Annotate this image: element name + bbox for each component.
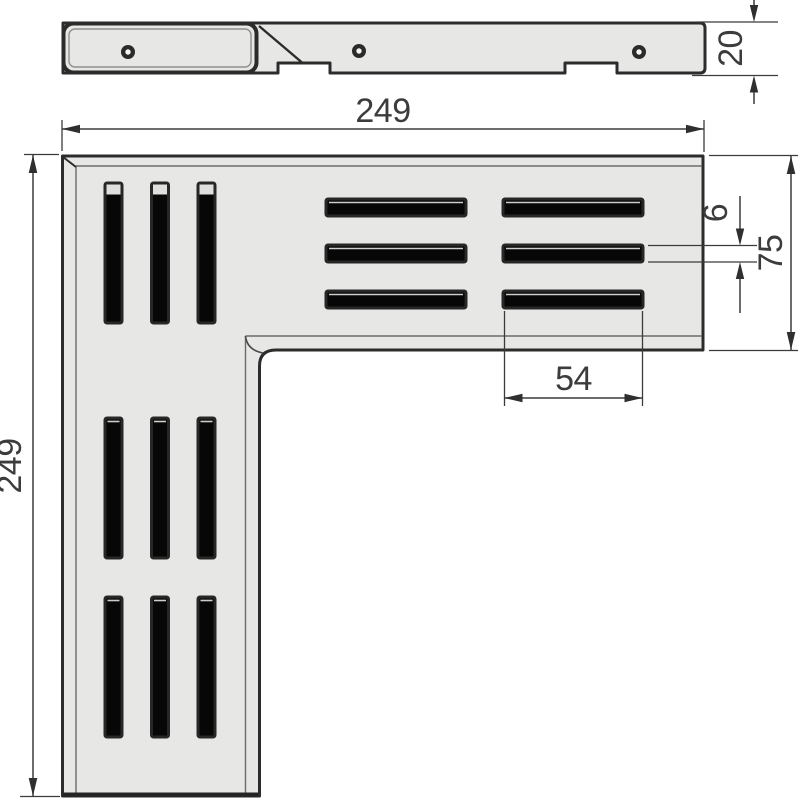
dim-label-slot-length: 54 [555,360,592,398]
profile-end-sleeve [64,24,257,73]
arrowhead [505,394,523,403]
arrowhead [736,229,744,246]
arrowhead [787,156,796,174]
vent-slot-horizontal [503,245,643,262]
arrowhead [686,125,704,134]
vent-slot-horizontal [326,199,466,216]
arrowhead [29,155,38,173]
vent-slot-vertical [152,418,169,558]
arrowhead [736,262,744,279]
vent-slot-horizontal [326,291,466,308]
dim-label-top-width: 249 [355,92,410,130]
dimension-left-height: 249 [0,155,60,797]
arrowhead [625,394,643,403]
vent-slot-vertical [105,183,122,323]
dim-label-left-height: 249 [0,438,29,493]
vent-slot-vertical [152,183,169,323]
screw-hole [352,44,366,58]
dimension-top-width: 249 [62,92,704,152]
main-view: 249 249 75 6 [0,92,798,797]
dim-label-profile-thickness: 20 [712,30,750,67]
arrowhead [29,778,38,796]
vent-slot-horizontal [503,199,643,216]
dimension-arm-width: 75 [709,156,798,351]
profile-view: 20 [63,0,778,104]
arrowhead [750,5,758,22]
arrowhead [787,332,796,350]
dim-label-slot-width: 6 [697,204,735,222]
drain-grate-drawing: 20 249 249 [0,0,799,800]
vertical-vent-slots [105,183,215,737]
vent-slot-vertical [105,597,122,737]
vent-slot-vertical [105,418,122,558]
vent-slot-vertical [198,183,215,323]
vent-slot-vertical [152,597,169,737]
screw-hole [121,45,135,59]
vent-slot-vertical [198,597,215,737]
technical-drawing-canvas: 20 249 249 [0,0,799,800]
vent-slot-horizontal [503,291,643,308]
screw-hole [632,45,646,59]
dim-label-arm-width: 75 [752,235,790,272]
arrowhead [62,125,80,134]
vent-slot-vertical [198,418,215,558]
arrowhead [750,76,758,93]
vent-slot-horizontal [326,245,466,262]
